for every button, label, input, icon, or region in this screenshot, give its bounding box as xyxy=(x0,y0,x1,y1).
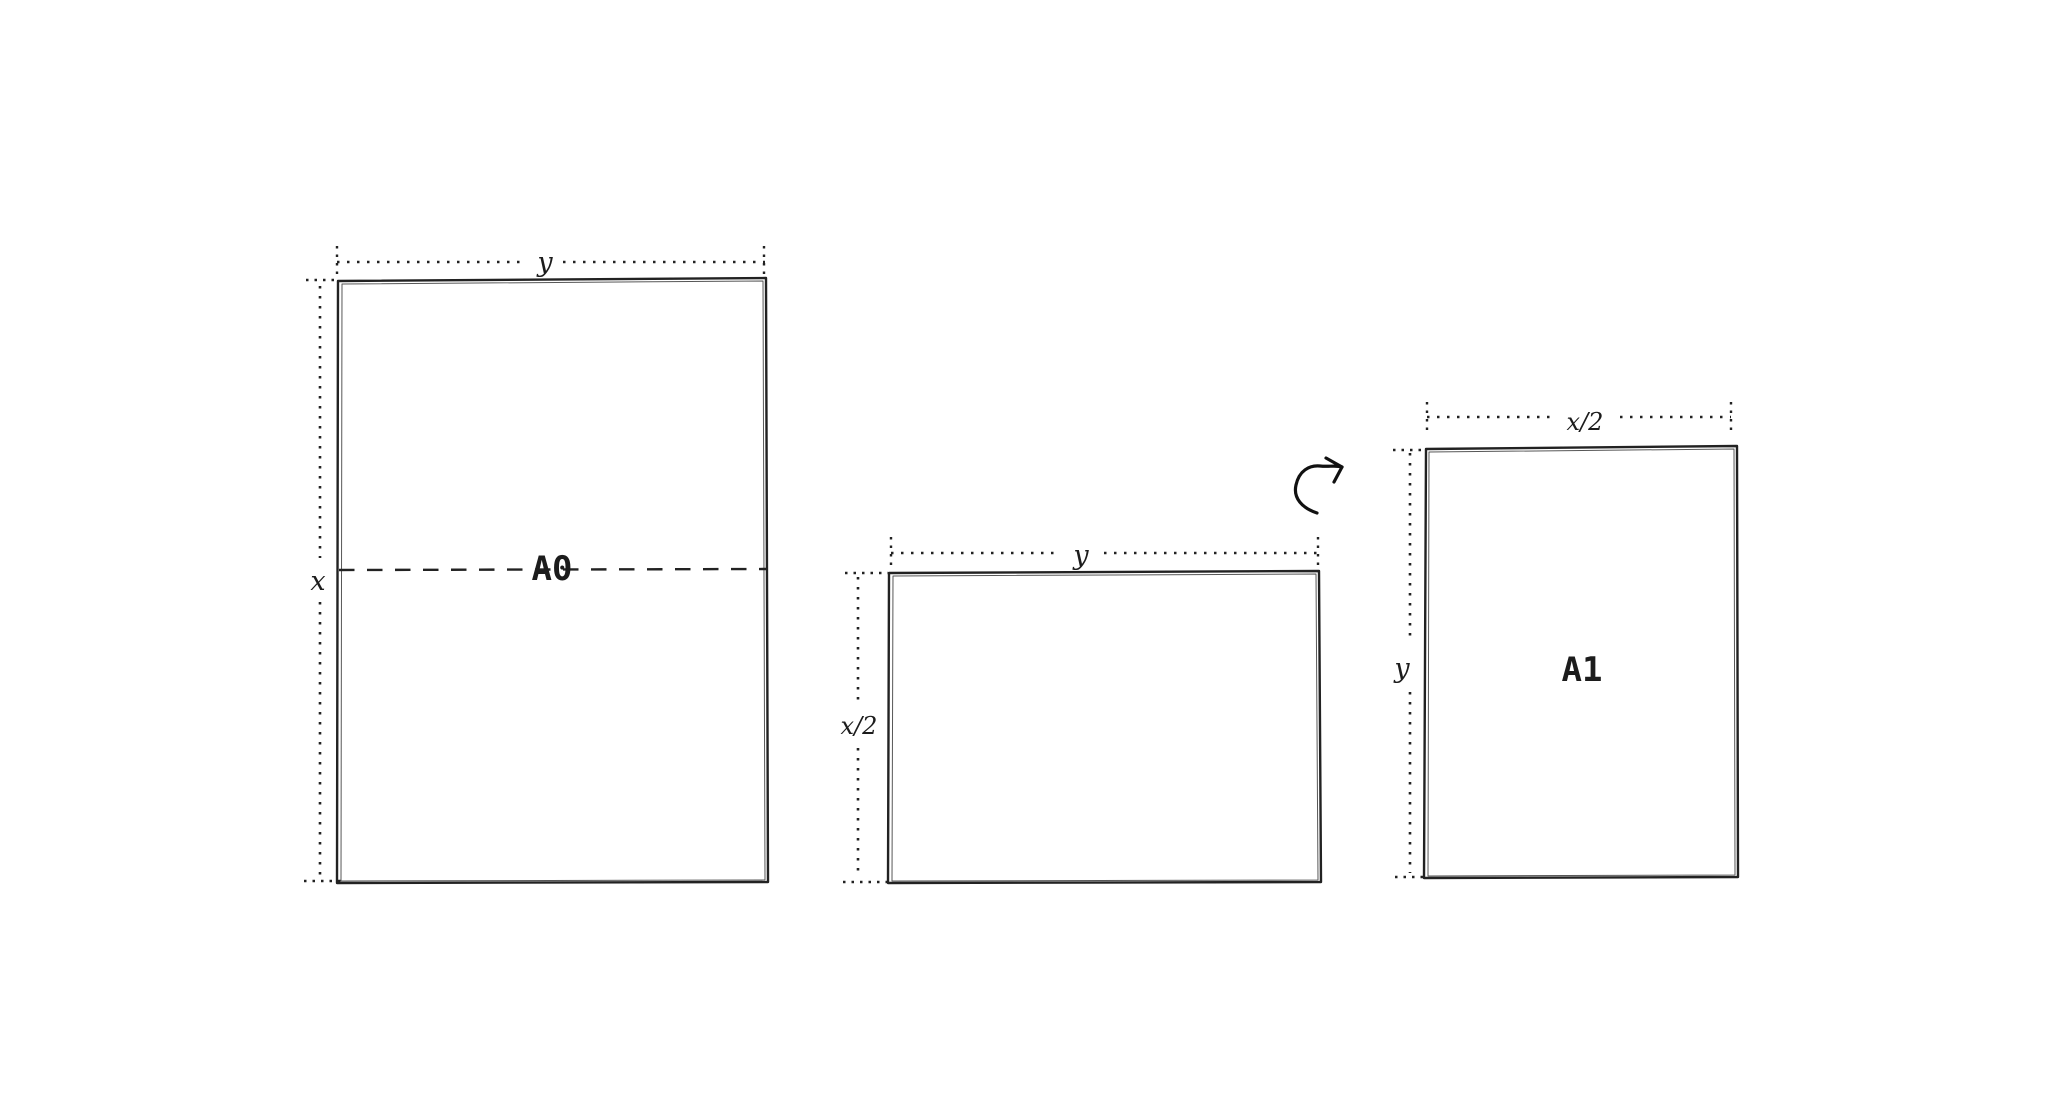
sheet-a1-landscape-outline xyxy=(888,571,1321,883)
sheet-a1-landscape-width-dimension: y xyxy=(891,537,1318,571)
rotate-arrow-icon xyxy=(1295,458,1342,513)
sheet-a0-width-dimension: y xyxy=(337,246,765,279)
sheet-a1-portrait: x/2 y A1 xyxy=(1393,402,1738,878)
sheet-a1-landscape-height-dimension: x/2 xyxy=(841,573,888,882)
sheet-a1-portrait-name: A1 xyxy=(1562,650,1603,690)
sheet-a1-landscape-height-label: x/2 xyxy=(841,712,878,740)
sheet-a1-landscape-width-label: y xyxy=(1072,540,1089,571)
sheet-a0: y x A0 xyxy=(304,246,768,883)
sheet-a1-landscape: y x/2 xyxy=(841,537,1321,883)
sheet-a0-height-dimension: x xyxy=(304,280,341,881)
sheet-a1-portrait-height-label: y xyxy=(1393,653,1410,684)
sheet-a1-portrait-height-dimension: y xyxy=(1393,450,1424,877)
sheet-a0-width-label: y xyxy=(536,247,553,278)
sheet-a0-height-label: x xyxy=(310,566,325,597)
sheet-a1-portrait-width-label: x/2 xyxy=(1567,408,1604,436)
diagram-canvas: y x A0 y x/2 xyxy=(0,0,2048,1119)
sheet-a0-name: A0 xyxy=(532,549,573,589)
sheet-a1-landscape-outline-ghost xyxy=(892,574,1318,881)
sheet-a1-portrait-width-dimension: x/2 xyxy=(1427,402,1731,436)
paper-folding-diagram: y x A0 y x/2 xyxy=(0,0,2048,1119)
